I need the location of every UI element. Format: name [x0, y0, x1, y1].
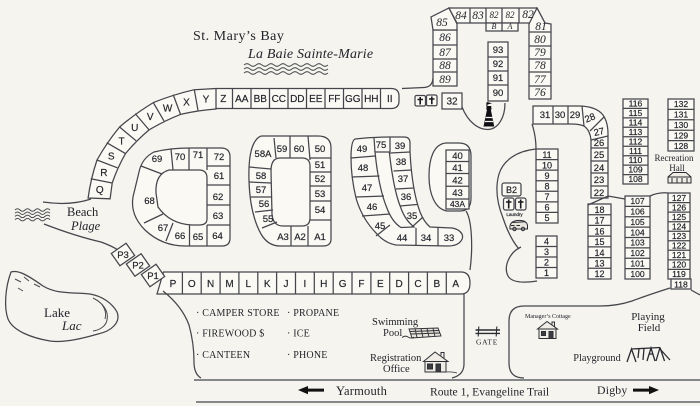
svg-text:3: 3 — [544, 247, 549, 257]
svg-text:Route 1, Evangeline Trail: Route 1, Evangeline Trail — [430, 386, 549, 399]
svg-text:33: 33 — [444, 233, 455, 244]
svg-text:X: X — [183, 97, 190, 108]
svg-text:· CANTEEN: · CANTEEN — [196, 350, 250, 361]
svg-text:106: 106 — [630, 207, 645, 217]
svg-text:F: F — [358, 279, 364, 290]
svg-text:102: 102 — [630, 248, 645, 258]
svg-text:Pool: Pool — [383, 328, 402, 339]
svg-text:N: N — [207, 279, 214, 290]
svg-text:15: 15 — [594, 237, 604, 247]
svg-text:91: 91 — [493, 73, 504, 84]
svg-text:29: 29 — [570, 110, 581, 121]
svg-text:Digby: Digby — [597, 383, 628, 397]
svg-text:123: 123 — [672, 231, 687, 241]
svg-text:AA: AA — [235, 94, 249, 105]
svg-text:Hall: Hall — [669, 163, 685, 173]
svg-text:V: V — [147, 112, 154, 123]
svg-text:127: 127 — [672, 193, 687, 203]
svg-text:Z: Z — [220, 94, 226, 105]
svg-text:130: 130 — [674, 120, 689, 130]
svg-text:120: 120 — [672, 260, 687, 270]
svg-text:108: 108 — [628, 174, 643, 184]
svg-text:43A: 43A — [450, 199, 465, 209]
svg-text:24: 24 — [594, 163, 605, 174]
svg-text:10: 10 — [542, 160, 552, 170]
svg-text:40: 40 — [452, 151, 463, 162]
svg-text:FF: FF — [328, 94, 340, 105]
svg-text:59: 59 — [277, 144, 288, 155]
svg-text:46: 46 — [367, 202, 378, 213]
svg-text:30: 30 — [555, 110, 566, 121]
svg-text:P2: P2 — [132, 261, 144, 272]
svg-text:A: A — [507, 22, 513, 31]
svg-text:35: 35 — [407, 211, 418, 222]
svg-text:6: 6 — [544, 203, 549, 213]
svg-text:B2: B2 — [506, 185, 517, 195]
svg-text:72: 72 — [214, 152, 225, 163]
svg-text:· PHONE: · PHONE — [287, 350, 328, 361]
svg-text:D: D — [395, 279, 402, 290]
svg-text:II: II — [387, 94, 393, 105]
svg-text:11: 11 — [542, 150, 551, 160]
svg-text:M: M — [225, 279, 233, 290]
svg-text:22: 22 — [594, 188, 605, 199]
svg-text:26: 26 — [594, 138, 605, 149]
svg-text:89: 89 — [439, 74, 451, 86]
svg-text:16: 16 — [594, 226, 604, 236]
svg-text:Playground: Playground — [573, 353, 621, 364]
svg-text:55: 55 — [263, 214, 274, 225]
svg-text:P: P — [170, 279, 177, 290]
svg-text:37: 37 — [398, 174, 409, 185]
svg-text:U: U — [131, 123, 138, 134]
svg-text:131: 131 — [674, 110, 689, 120]
svg-text:C: C — [414, 279, 421, 290]
svg-text:A: A — [452, 279, 459, 290]
svg-text:32: 32 — [446, 97, 458, 108]
svg-text:E: E — [377, 279, 384, 290]
svg-text:Lac: Lac — [61, 318, 82, 333]
svg-text:90: 90 — [493, 88, 504, 99]
svg-text:A2: A2 — [294, 232, 306, 243]
svg-text:DD: DD — [290, 94, 304, 105]
svg-text:17: 17 — [594, 216, 604, 226]
svg-text:G: G — [339, 279, 347, 290]
svg-text:· FIREWOOD $: · FIREWOOD $ — [196, 329, 265, 340]
svg-text:83: 83 — [472, 10, 484, 22]
svg-text:Office: Office — [383, 364, 410, 375]
svg-text:77: 77 — [534, 74, 547, 86]
svg-text:121: 121 — [672, 250, 687, 260]
svg-text:64: 64 — [212, 231, 223, 242]
svg-text:B: B — [433, 279, 440, 290]
svg-text:44: 44 — [397, 233, 408, 244]
svg-text:87: 87 — [439, 47, 452, 59]
svg-text:38: 38 — [396, 157, 407, 168]
svg-text:114: 114 — [629, 117, 643, 127]
svg-text:P3: P3 — [117, 250, 129, 261]
svg-text:EE: EE — [309, 94, 323, 105]
svg-text:A3: A3 — [277, 232, 289, 243]
svg-text:129: 129 — [674, 130, 689, 140]
svg-text:47: 47 — [362, 183, 373, 194]
svg-text:S: S — [108, 152, 115, 163]
svg-text:70: 70 — [175, 152, 186, 163]
svg-text:110: 110 — [629, 155, 643, 165]
svg-text:103: 103 — [630, 238, 645, 248]
svg-text:52: 52 — [315, 174, 326, 185]
svg-text:54: 54 — [315, 205, 326, 216]
svg-text:HH: HH — [364, 94, 378, 105]
svg-text:81: 81 — [535, 21, 547, 33]
svg-text:Manager’s Cottage: Manager’s Cottage — [525, 314, 571, 320]
svg-text:23: 23 — [594, 175, 605, 186]
svg-text:118: 118 — [674, 279, 688, 289]
svg-text:25: 25 — [594, 150, 605, 161]
svg-text:34: 34 — [421, 233, 432, 244]
svg-text:Recreation: Recreation — [655, 153, 694, 163]
svg-text:78: 78 — [534, 60, 546, 72]
svg-text:13: 13 — [594, 259, 604, 269]
svg-text:La Baie Sainte-Marie: La Baie Sainte-Marie — [247, 47, 373, 62]
svg-text:B: B — [492, 22, 497, 31]
svg-text:116: 116 — [629, 99, 643, 109]
svg-text:Field: Field — [638, 322, 661, 334]
svg-text:GG: GG — [345, 94, 361, 105]
svg-text:4: 4 — [544, 237, 549, 247]
svg-text:P1: P1 — [147, 271, 159, 282]
svg-text:Y: Y — [203, 94, 210, 105]
svg-text:65: 65 — [193, 232, 204, 243]
svg-text:O: O — [188, 279, 196, 290]
svg-text:69: 69 — [152, 154, 163, 165]
svg-text:K: K — [264, 279, 271, 290]
svg-text:66: 66 — [175, 231, 186, 242]
svg-text:80: 80 — [534, 34, 546, 46]
svg-text:49: 49 — [357, 144, 368, 155]
svg-text:124: 124 — [672, 221, 687, 231]
svg-text:93: 93 — [493, 45, 504, 56]
svg-text:84: 84 — [455, 10, 467, 22]
svg-text:126: 126 — [672, 202, 687, 212]
svg-text:1: 1 — [544, 268, 549, 278]
svg-text:53: 53 — [315, 189, 326, 200]
svg-text:75: 75 — [376, 140, 387, 151]
svg-text:R: R — [100, 168, 107, 179]
svg-text:T: T — [119, 136, 125, 147]
svg-text:Registration: Registration — [370, 353, 422, 364]
svg-text:12: 12 — [594, 269, 604, 279]
svg-text:J: J — [284, 279, 289, 290]
svg-text:56: 56 — [259, 199, 270, 210]
svg-text:82: 82 — [506, 10, 516, 20]
svg-text:Swimming: Swimming — [372, 317, 419, 328]
svg-text:GATE: GATE — [476, 338, 498, 347]
svg-text:Beach: Beach — [67, 205, 99, 219]
svg-text:BB: BB — [254, 94, 268, 105]
svg-text:9: 9 — [544, 171, 549, 181]
svg-text:57: 57 — [256, 185, 267, 196]
svg-text:58A: 58A — [255, 149, 273, 160]
svg-text:62: 62 — [213, 192, 224, 203]
svg-text:92: 92 — [493, 59, 504, 70]
svg-text:43: 43 — [452, 188, 463, 199]
svg-text:5: 5 — [544, 213, 549, 223]
svg-text:68: 68 — [144, 196, 155, 207]
svg-text:100: 100 — [630, 269, 645, 279]
svg-text:Laundry: Laundry — [506, 212, 523, 217]
svg-text:45: 45 — [375, 221, 386, 232]
svg-text:8: 8 — [544, 182, 549, 192]
svg-text:St. Mary’s Bay: St. Mary’s Bay — [193, 29, 284, 44]
svg-text:Yarmouth: Yarmouth — [336, 384, 388, 398]
svg-text:Plage: Plage — [70, 219, 101, 233]
svg-text:2: 2 — [544, 258, 549, 268]
svg-text:· ICE: · ICE — [287, 329, 310, 340]
svg-text:· CAMPER STORE: · CAMPER STORE — [196, 308, 280, 319]
svg-text:7: 7 — [544, 192, 549, 202]
svg-text:79: 79 — [534, 47, 546, 59]
svg-text:H: H — [320, 279, 327, 290]
svg-text:L: L — [246, 279, 252, 290]
svg-text:A1: A1 — [314, 232, 326, 243]
svg-text:71: 71 — [193, 150, 204, 161]
svg-text:I: I — [304, 279, 307, 290]
svg-text:60: 60 — [294, 144, 305, 155]
svg-text:104: 104 — [630, 227, 645, 237]
svg-text:132: 132 — [674, 99, 689, 109]
svg-text:101: 101 — [630, 258, 645, 268]
svg-text:82: 82 — [490, 10, 500, 20]
svg-text:42: 42 — [452, 176, 463, 187]
svg-text:88: 88 — [439, 60, 451, 72]
svg-text:31: 31 — [540, 110, 551, 121]
svg-text:51: 51 — [315, 160, 326, 171]
svg-text:48: 48 — [358, 163, 369, 174]
svg-text:76: 76 — [534, 87, 546, 99]
svg-text:36: 36 — [401, 192, 412, 203]
svg-text:112: 112 — [629, 136, 643, 146]
svg-text:119: 119 — [672, 269, 686, 279]
svg-text:107: 107 — [630, 196, 645, 206]
svg-text:41: 41 — [452, 163, 463, 174]
svg-text:82: 82 — [522, 9, 534, 21]
svg-text:Q: Q — [96, 185, 104, 196]
svg-text:67: 67 — [158, 223, 169, 234]
svg-text:18: 18 — [594, 205, 604, 215]
svg-text:122: 122 — [672, 241, 687, 251]
svg-text:39: 39 — [395, 141, 406, 152]
svg-text:125: 125 — [672, 212, 687, 222]
svg-text:86: 86 — [439, 32, 451, 44]
svg-text:61: 61 — [214, 171, 225, 182]
svg-text:105: 105 — [630, 217, 645, 227]
svg-text:63: 63 — [213, 211, 224, 222]
svg-text:· PROPANE: · PROPANE — [287, 308, 339, 319]
svg-text:58: 58 — [256, 171, 267, 182]
svg-text:128: 128 — [674, 141, 689, 151]
svg-text:50: 50 — [315, 144, 326, 155]
svg-text:14: 14 — [594, 248, 604, 258]
svg-text:W: W — [163, 103, 173, 114]
svg-text:CC: CC — [272, 94, 286, 105]
svg-text:85: 85 — [436, 17, 448, 29]
